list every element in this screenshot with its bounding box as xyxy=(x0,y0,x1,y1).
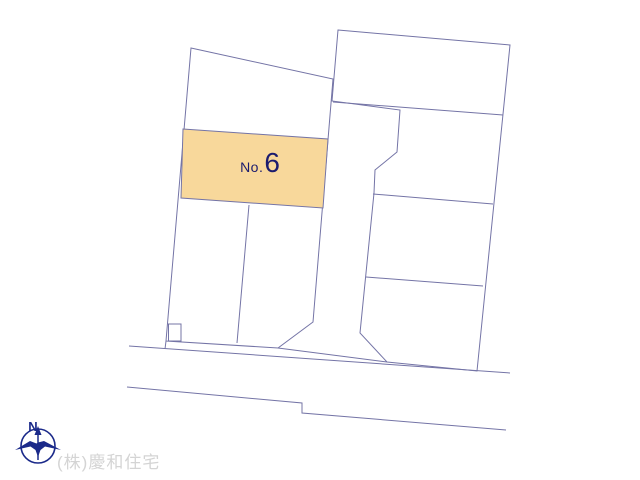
left-edge-extension xyxy=(165,341,166,349)
corner-notch xyxy=(169,324,182,341)
lot-no6-shape xyxy=(181,129,328,208)
compass: N xyxy=(15,419,61,463)
right-block-outline xyxy=(332,30,510,371)
parcel-diagram: N xyxy=(0,0,640,480)
road-edge-bottom xyxy=(127,387,506,430)
company-credit: (株)慶和住宅 xyxy=(57,448,160,473)
driveway-mouth-edge xyxy=(278,348,387,362)
lot-map-canvas: N No. 6 (株)慶和住宅 xyxy=(0,0,640,480)
